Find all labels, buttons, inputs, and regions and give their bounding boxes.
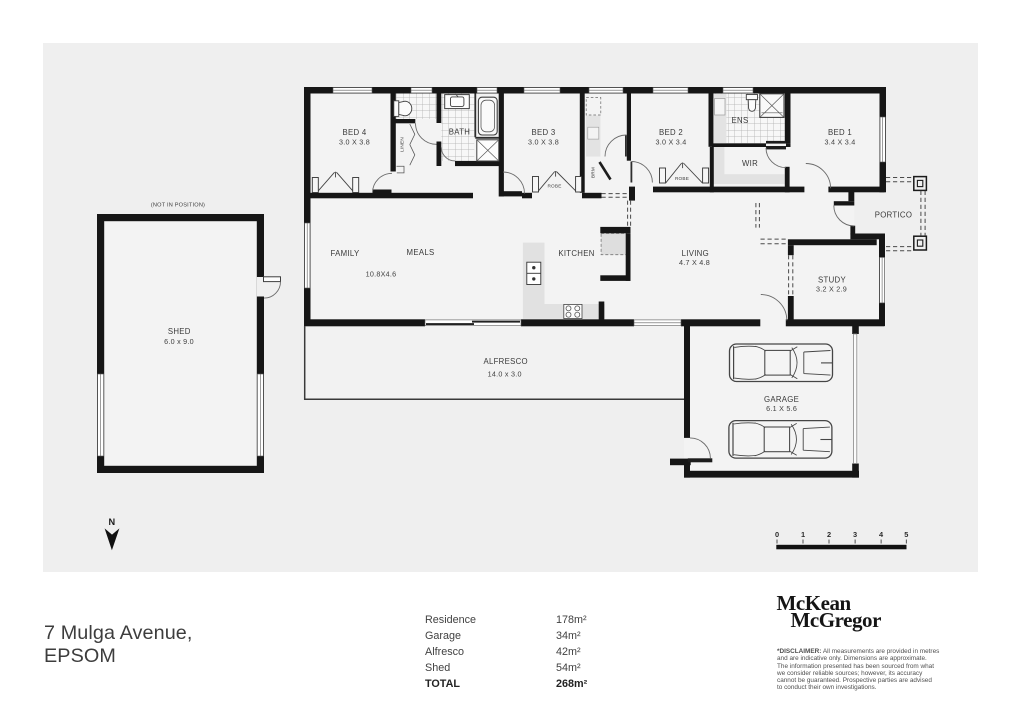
- svg-text:LIVING: LIVING: [682, 249, 709, 258]
- svg-text:WIR: WIR: [742, 159, 758, 168]
- svg-text:ROBE: ROBE: [675, 176, 689, 181]
- svg-text:3.0 X 3.8: 3.0 X 3.8: [528, 138, 559, 147]
- svg-text:6.0 x 9.0: 6.0 x 9.0: [164, 337, 194, 346]
- svg-text:14.0 x 3.0: 14.0 x 3.0: [488, 370, 522, 379]
- svg-text:3.0 X 3.4: 3.0 X 3.4: [655, 138, 686, 147]
- svg-text:KITCHEN: KITCHEN: [558, 249, 594, 258]
- svg-text:N: N: [108, 517, 115, 527]
- svg-text:LINEN: LINEN: [400, 137, 405, 152]
- svg-text:SHED: SHED: [168, 327, 191, 336]
- svg-text:MEALS: MEALS: [407, 248, 435, 257]
- svg-text:BED 1: BED 1: [828, 128, 852, 137]
- svg-text:4.7 X 4.8: 4.7 X 4.8: [679, 258, 710, 267]
- svg-text:5: 5: [904, 530, 908, 539]
- svg-text:3.0 X 3.8: 3.0 X 3.8: [339, 138, 370, 147]
- svg-text:6.1 X 5.6: 6.1 X 5.6: [766, 404, 797, 413]
- svg-text:BATH: BATH: [449, 128, 470, 137]
- svg-text:2: 2: [827, 530, 831, 539]
- svg-text:BED 2: BED 2: [659, 128, 683, 137]
- svg-text:ROBE: ROBE: [547, 184, 561, 189]
- svg-text:BED 4: BED 4: [342, 128, 366, 137]
- svg-text:FAMILY: FAMILY: [331, 249, 360, 258]
- svg-text:(NOT IN POSITION): (NOT IN POSITION): [151, 203, 205, 209]
- svg-text:10.8X4.6: 10.8X4.6: [366, 270, 397, 279]
- svg-text:0: 0: [775, 530, 779, 539]
- svg-text:GARAGE: GARAGE: [764, 395, 799, 404]
- svg-text:ENS: ENS: [732, 116, 749, 125]
- svg-text:1: 1: [801, 530, 805, 539]
- svg-text:3: 3: [853, 530, 857, 539]
- svg-text:3.2 X 2.9: 3.2 X 2.9: [816, 285, 847, 294]
- svg-text:ALFRESCO: ALFRESCO: [483, 357, 527, 366]
- svg-text:3.4 X 3.4: 3.4 X 3.4: [824, 138, 855, 147]
- svg-text:BED 3: BED 3: [531, 128, 555, 137]
- svg-text:PORTICO: PORTICO: [875, 211, 912, 220]
- svg-text:BRM: BRM: [590, 167, 595, 178]
- svg-text:STUDY: STUDY: [818, 275, 846, 284]
